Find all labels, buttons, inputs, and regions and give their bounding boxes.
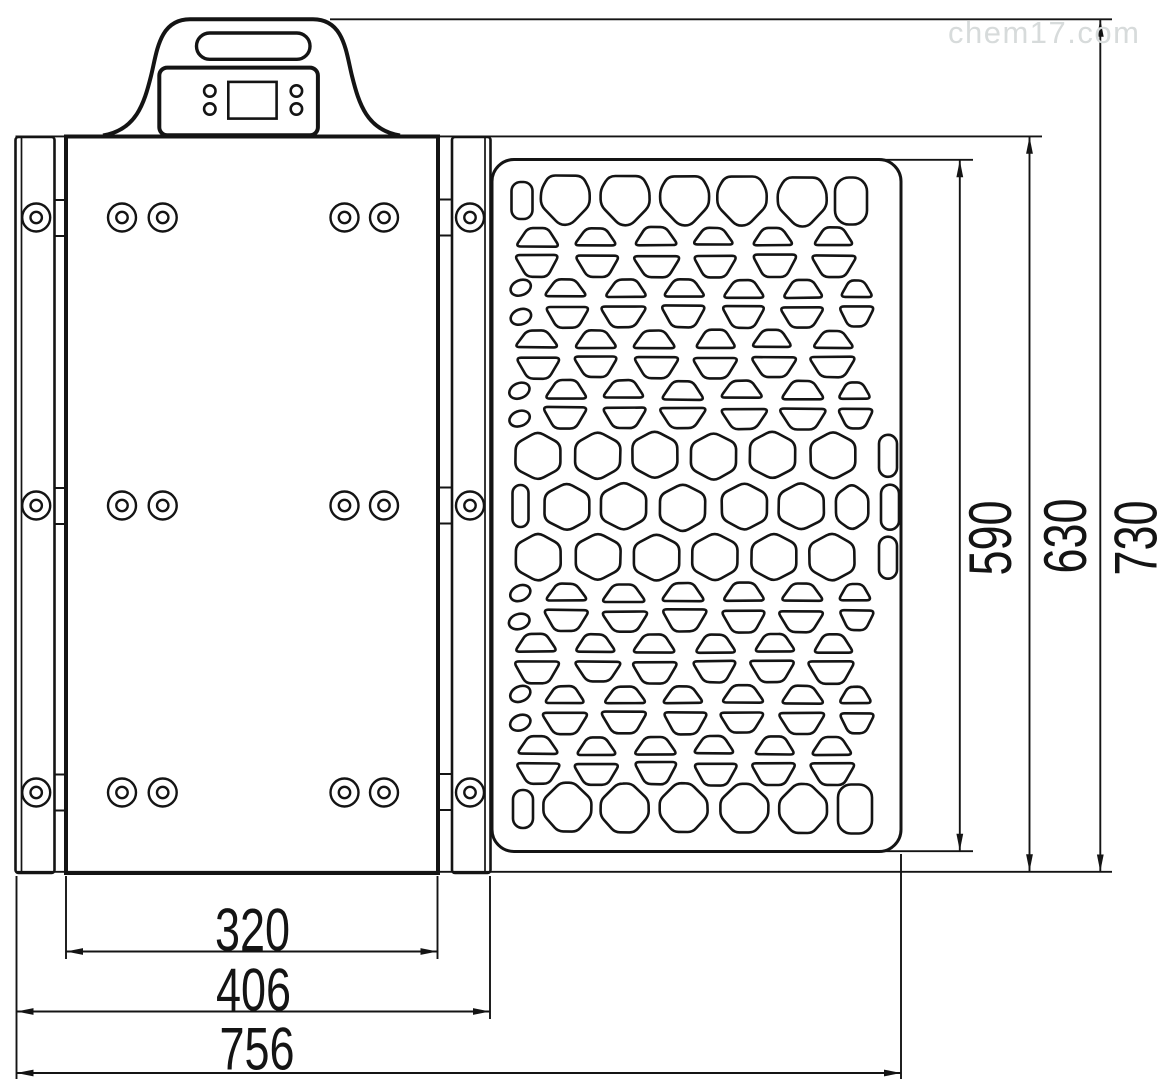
- svg-text:756: 756: [219, 1016, 294, 1080]
- svg-text:chem17.com: chem17.com: [948, 15, 1140, 50]
- svg-text:630: 630: [1033, 498, 1100, 573]
- svg-text:590: 590: [958, 500, 1025, 575]
- svg-text:730: 730: [1103, 500, 1160, 575]
- svg-text:406: 406: [216, 957, 291, 1024]
- svg-text:320: 320: [215, 897, 290, 964]
